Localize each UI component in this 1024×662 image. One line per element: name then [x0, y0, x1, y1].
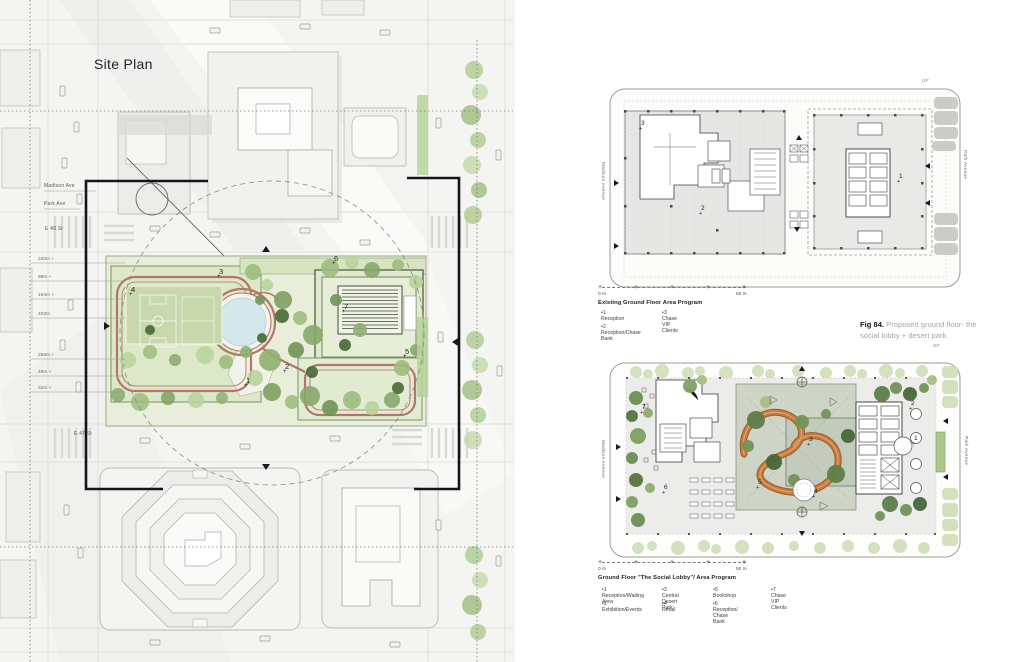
site-plan-title: Site Plan — [94, 56, 153, 72]
floor-tag-existing: GF — [922, 78, 928, 83]
proposed-marker-6: 6 — [664, 485, 668, 496]
existing-plan-graphic — [600, 85, 970, 295]
proposed-scale-end: 50 m — [736, 567, 747, 572]
proposed-marker-4: 4 — [814, 489, 818, 500]
elevation-label: 403m — [38, 312, 50, 317]
legend-item: •6 Reception/ Chase Bank — [713, 601, 738, 625]
site-plan-graphic — [0, 0, 515, 662]
site-marker-1: 1 — [246, 378, 250, 389]
legend-item: •3 Chase VIP Clients — [662, 310, 678, 334]
proposed-plan-graphic — [598, 358, 973, 564]
existing-scale-bar — [600, 283, 748, 293]
elevation-label: 98m + — [38, 275, 51, 280]
existing-plan-park-avenue-label: Park Avenue — [963, 150, 968, 179]
floor-tag-proposed: GF — [933, 343, 939, 348]
elevation-label: 32m + — [38, 386, 51, 391]
proposed-marker-5: 5 — [758, 480, 762, 491]
legend-item: •2 Exhibition/Events — [602, 601, 642, 613]
existing-legend-caption: Existing Ground Floor Area Program — [598, 300, 702, 306]
site-marker-5: 5 — [405, 349, 409, 360]
existing-plan-madison-avenue-label: Madison Avenue — [601, 162, 606, 200]
site-marker-6: 6 — [334, 256, 338, 267]
elevation-label: 48m + — [38, 370, 51, 375]
street-label-park-ave: Park Ave — [44, 201, 66, 207]
legend-item: •1 Reception — [601, 310, 624, 322]
existing-scale-start: 0 m — [598, 292, 606, 297]
legend-item: •5 Bookshop — [713, 587, 736, 599]
legend-item: •7 Chase VIP Clients — [771, 587, 787, 611]
presentation-board: Site Plan Madison Ave Park Ave E 48 St E… — [0, 0, 1024, 662]
site-marker-7: 7 — [344, 304, 348, 315]
street-label-e48: E 48 St — [45, 226, 63, 232]
site-marker-4: 4 — [131, 287, 135, 298]
proposed-marker-2: 2 — [911, 401, 915, 412]
existing-marker-3: 3 — [641, 121, 645, 132]
existing-marker-2: 2 — [701, 206, 705, 217]
legend-item: •4 Retail — [662, 601, 675, 613]
figure-caption: Fig 84. Proposed ground floor- the socia… — [860, 320, 984, 341]
proposed-marker-7: 7 — [642, 405, 646, 416]
site-marker-3: 3 — [219, 269, 223, 280]
street-label-e47: E 47 St — [74, 431, 92, 437]
proposed-marker-3: 3 — [809, 437, 813, 448]
figure-number: Fig 84. — [860, 320, 884, 329]
existing-scale-end: 50 m — [736, 292, 747, 297]
elevation-label: 340m + — [38, 257, 54, 262]
proposed-legend-caption: Ground Floor "The Social Lobby"/ Area Pr… — [598, 575, 736, 581]
legend-item: •2 Reception/Chase Bank — [601, 324, 641, 342]
site-marker-2: 2 — [285, 364, 289, 375]
elevation-label: 164m + — [38, 293, 54, 298]
proposed-plan-madison-avenue-label: Madison Avenue — [601, 440, 606, 478]
elevation-label: 256m + — [38, 353, 54, 358]
proposed-marker-1: 1 — [914, 436, 918, 447]
proposed-plan-park-avenue-label: Park Avenue — [964, 436, 969, 465]
proposed-scale-start: 0 m — [598, 567, 606, 572]
street-label-madison-ave: Madison Ave — [44, 183, 75, 189]
proposed-scale-bar — [600, 558, 748, 568]
existing-marker-1: 1 — [899, 174, 903, 185]
